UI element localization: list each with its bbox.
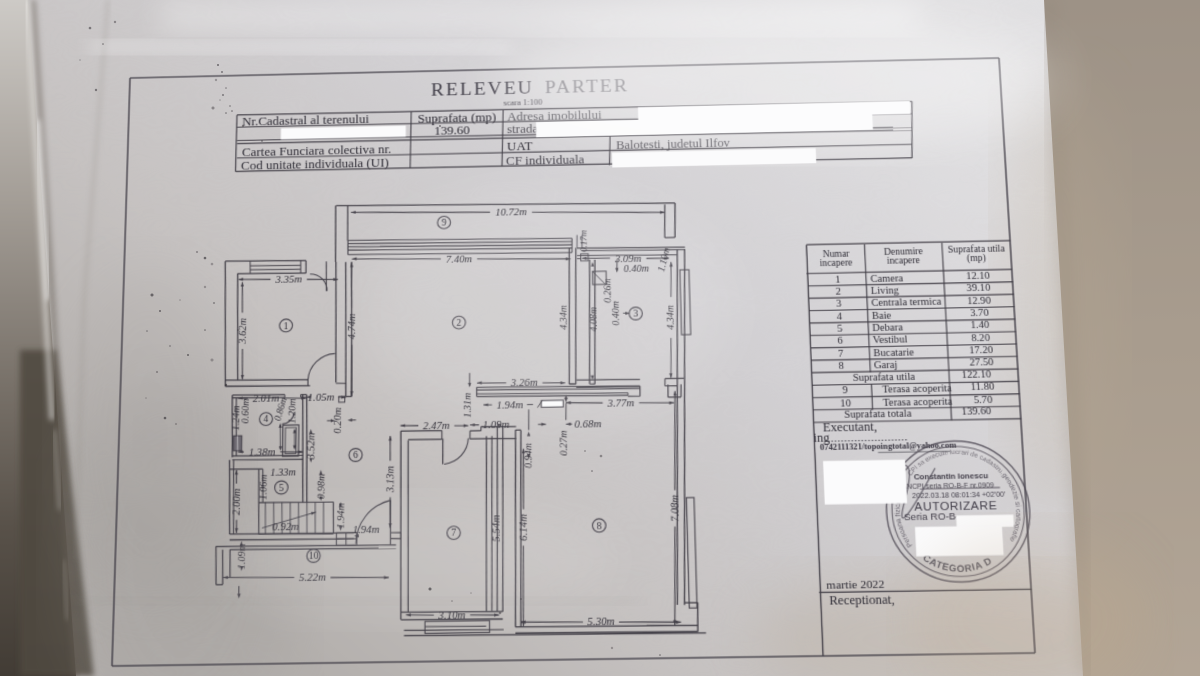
svg-text:8: 8 [597, 520, 603, 531]
svg-text:5.30m: 5.30m [587, 616, 615, 629]
svg-text:4.34m: 4.34m [666, 305, 677, 330]
svg-text:1.09m: 1.09m [483, 420, 510, 432]
svg-text:RELEVEU: RELEVEU [431, 77, 534, 100]
svg-text:incapere: incapere [819, 257, 852, 268]
svg-text:11.80: 11.80 [970, 381, 994, 393]
svg-text:27.50: 27.50 [969, 357, 994, 369]
svg-text:3.70: 3.70 [970, 307, 989, 319]
svg-text:UAT: UAT [507, 139, 533, 154]
svg-text:3: 3 [836, 299, 842, 311]
svg-text:12.10: 12.10 [966, 270, 991, 282]
svg-text:Terasa acoperita: Terasa acoperita [882, 383, 953, 396]
svg-text:2.00m: 2.00m [231, 488, 243, 515]
svg-text:5: 5 [279, 482, 285, 493]
svg-text:Debara: Debara [872, 322, 904, 334]
svg-text:3.10m: 3.10m [437, 609, 465, 622]
svg-text:8: 8 [838, 361, 844, 373]
svg-text:Executant,: Executant, [823, 420, 878, 435]
svg-text:1: 1 [283, 321, 288, 332]
svg-text:2.47m: 2.47m [423, 420, 450, 432]
svg-text:Terasa acoperita: Terasa acoperita [883, 396, 954, 409]
svg-text:Bucatarie: Bucatarie [873, 347, 914, 359]
svg-text:(mp): (mp) [967, 252, 986, 263]
svg-text:4: 4 [836, 311, 842, 323]
svg-text:0.26m: 0.26m [603, 278, 614, 303]
svg-text:122.10: 122.10 [961, 369, 991, 381]
svg-text:1.38m: 1.38m [249, 446, 276, 458]
svg-text:1: 1 [835, 274, 841, 286]
svg-text:1.40: 1.40 [970, 320, 989, 332]
svg-text:Suprafata utila: Suprafata utila [853, 371, 917, 384]
svg-text:10: 10 [309, 550, 320, 561]
svg-text:1.94m: 1.94m [353, 524, 380, 536]
svg-text:Garaj: Garaj [874, 360, 898, 372]
svg-text:1.94m: 1.94m [336, 503, 347, 529]
svg-text:3.62m: 3.62m [237, 318, 249, 345]
svg-text:6: 6 [837, 336, 843, 348]
svg-text:Baie: Baie [872, 310, 892, 322]
svg-text:8.20: 8.20 [971, 332, 990, 344]
svg-text:geodezie si cartografie: geodezie si cartografie [1000, 471, 1024, 543]
svg-text:Receptionat,: Receptionat, [829, 592, 895, 607]
svg-text:0.68m: 0.68m [574, 419, 601, 431]
svg-text:ANCPI seria RO-B-F nr.0909: ANCPI seria RO-B-F nr.0909 [902, 482, 995, 491]
svg-text:5.54m: 5.54m [491, 515, 503, 542]
svg-text:1.31m: 1.31m [463, 393, 474, 418]
svg-text:0.98m: 0.98m [317, 473, 328, 499]
svg-text:Cod unitate individuala (UI): Cod unitate individuala (UI) [241, 156, 389, 173]
svg-text:3.35m: 3.35m [274, 274, 301, 286]
svg-text:0742111321/topoingtotal@yahoo.: 0742111321/topoingtotal@yahoo.com [820, 440, 957, 452]
svg-text:Seria RO-B-: Seria RO-B- [904, 510, 960, 522]
svg-text:Constantin Ionescu: Constantin Ionescu [914, 471, 989, 482]
svg-text:5.22m: 5.22m [299, 572, 326, 585]
svg-text:4.08m: 4.08m [589, 307, 600, 332]
svg-text:7.40m: 7.40m [446, 254, 472, 266]
svg-text:Vestibul: Vestibul [873, 334, 909, 346]
svg-text:139.60: 139.60 [434, 123, 470, 138]
svg-text:4.34m: 4.34m [559, 305, 570, 330]
svg-text:5: 5 [837, 323, 843, 335]
svg-text:1.09m: 1.09m [237, 543, 248, 569]
svg-text:9: 9 [442, 218, 447, 228]
svg-text:7: 7 [451, 528, 457, 539]
svg-text:martie 2022: martie 2022 [826, 578, 885, 592]
svg-text:3.13m: 3.13m [385, 466, 397, 494]
svg-text:1.06m: 1.06m [259, 474, 270, 500]
svg-text:Camera: Camera [870, 273, 904, 285]
svg-text:9: 9 [842, 385, 848, 397]
svg-text:PARTER: PARTER [545, 75, 629, 98]
svg-text:1.33m: 1.33m [270, 468, 296, 479]
svg-text:39.10: 39.10 [966, 282, 991, 294]
svg-text:1.94m: 1.94m [496, 399, 523, 411]
svg-text:1.05m: 1.05m [308, 392, 335, 404]
svg-text:0.92m: 0.92m [272, 522, 299, 534]
svg-text:0.17m: 0.17m [578, 230, 589, 252]
svg-text:Centrala termica: Centrala termica [871, 297, 942, 310]
svg-text:0.60m: 0.60m [241, 398, 252, 423]
svg-text:2: 2 [457, 317, 462, 328]
svg-text:3.77m: 3.77m [606, 397, 634, 409]
svg-text:7.08m: 7.08m [669, 495, 682, 522]
svg-text:Balotesti, judetul Ilfov: Balotesti, judetul Ilfov [616, 135, 730, 152]
svg-text:4.74m: 4.74m [346, 313, 358, 339]
svg-text:3.52m: 3.52m [305, 433, 317, 461]
svg-text:2: 2 [835, 286, 841, 298]
svg-text:3.26m: 3.26m [510, 378, 538, 390]
svg-text:Living: Living [871, 285, 900, 297]
svg-text:12.90: 12.90 [967, 295, 992, 307]
svg-text:strada: strada [507, 122, 539, 137]
svg-text:Nr.Cadastral al terenului: Nr.Cadastral al terenului [242, 112, 370, 129]
svg-text:6.14m: 6.14m [518, 514, 530, 541]
svg-text:4: 4 [263, 414, 269, 425]
svg-text:139.60: 139.60 [961, 406, 991, 418]
svg-text:5.70: 5.70 [973, 394, 993, 406]
svg-text:7: 7 [838, 348, 844, 360]
svg-text:17.20: 17.20 [969, 344, 994, 356]
svg-text:0.40m: 0.40m [611, 301, 622, 326]
svg-text:1.20m: 1.20m [288, 398, 299, 423]
svg-text:incapere: incapere [887, 255, 920, 266]
svg-text:3: 3 [633, 308, 639, 319]
svg-text:CF individuala: CF individuala [506, 152, 585, 168]
svg-text:scara 1:100: scara 1:100 [503, 98, 542, 108]
svg-text:0.40m: 0.40m [624, 264, 650, 275]
svg-text:10.72m: 10.72m [495, 207, 527, 219]
svg-text:0.27m: 0.27m [559, 430, 570, 456]
svg-text:6: 6 [353, 450, 359, 461]
svg-text:10: 10 [840, 398, 851, 410]
